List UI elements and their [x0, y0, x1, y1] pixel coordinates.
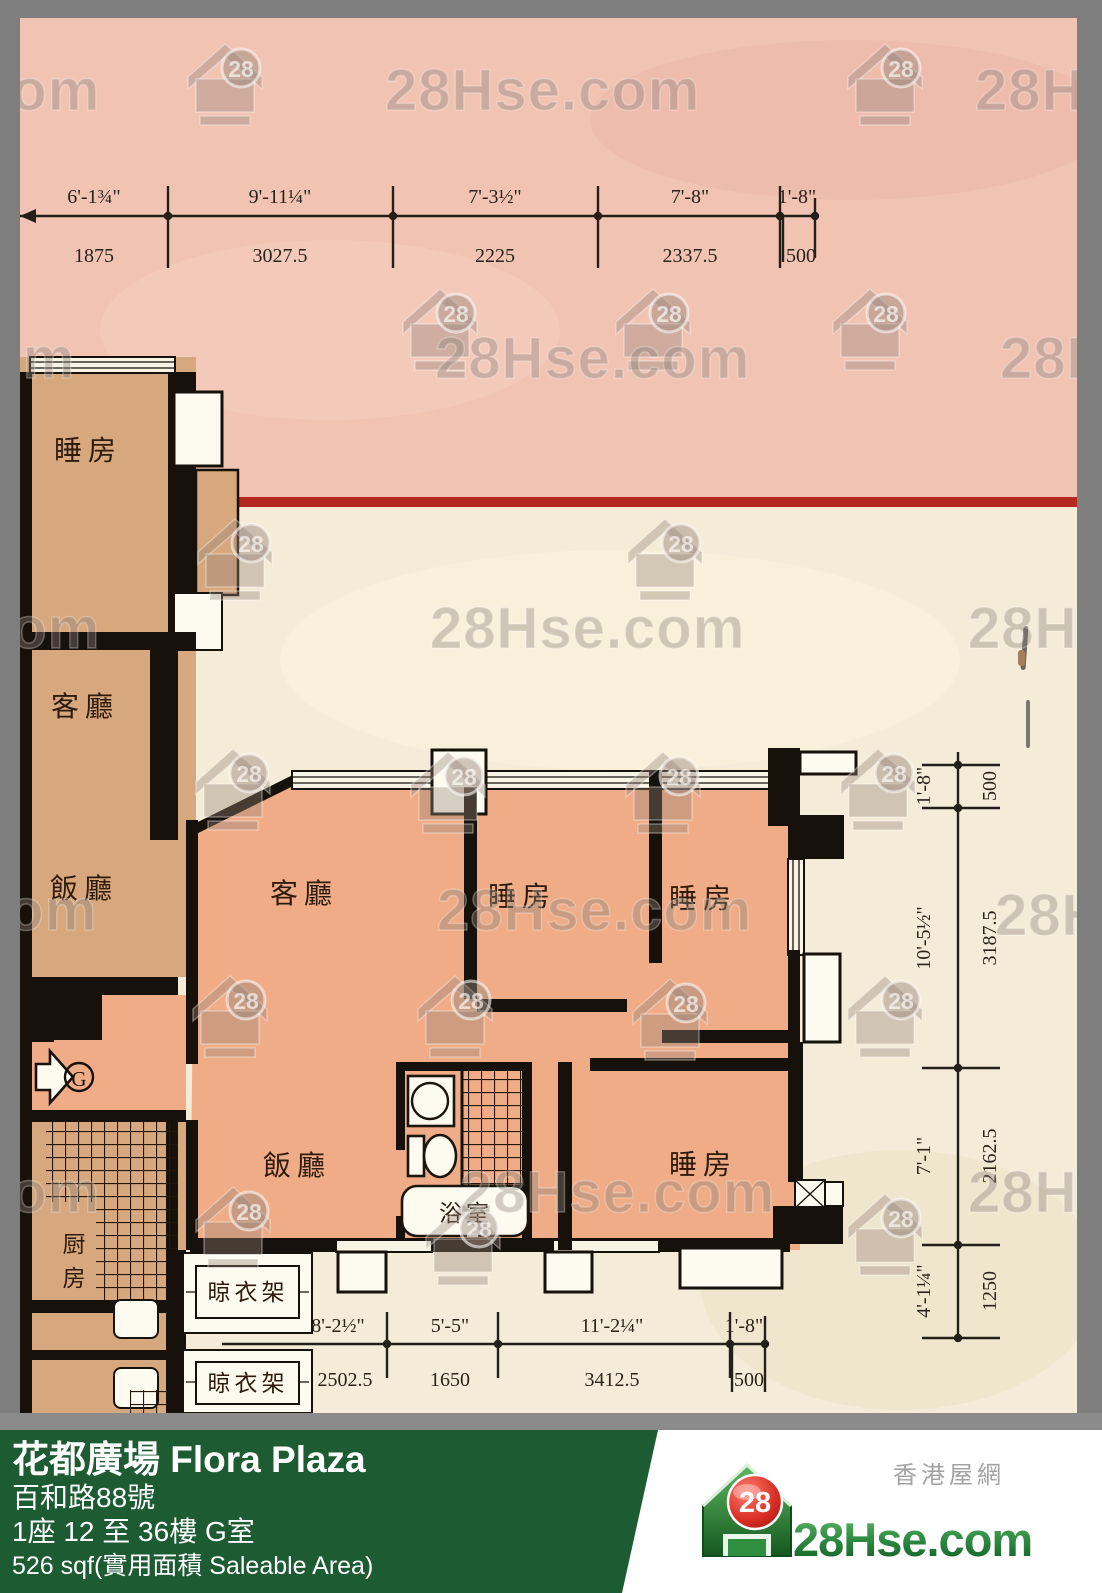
- toilet-icon: [408, 1136, 424, 1176]
- dim-top-ft: 6'-1¾": [67, 186, 120, 208]
- dim-dot: [389, 212, 397, 220]
- floorplan-page: 28 6'-1¾"18759'-11¼"3027.57'-3½"22257'-8…: [0, 0, 1102, 1593]
- dim-bottom-ft: 11'-2¼": [581, 1315, 644, 1337]
- room-label-kitchen-char: 厨: [63, 1232, 90, 1258]
- room-label-living-left: 客廳: [51, 690, 119, 723]
- dim-dot: [383, 1340, 391, 1348]
- dim-right-ft: 1'-8": [913, 767, 935, 805]
- dim-dot: [164, 212, 172, 220]
- dim-dot: [954, 1334, 962, 1342]
- dim-dot: [954, 804, 962, 812]
- footer-gray-band: [0, 1413, 1102, 1432]
- dim-dot: [494, 1340, 502, 1348]
- dim-top-ft: 1'-8": [778, 186, 816, 208]
- dim-bottom-ft: 5'-5": [431, 1315, 469, 1337]
- dim-top-mm: 500: [786, 245, 816, 267]
- watermark-text: 28Hse.com: [437, 878, 752, 943]
- dim-right-ft: 7'-1": [913, 1137, 935, 1175]
- dim-top-ft: 7'-8": [671, 186, 709, 208]
- dim-right-ft: 10'-5½": [913, 906, 935, 969]
- floorplan-scan: 28 6'-1¾"18759'-11¼"3027.57'-3½"22257'-8…: [0, 0, 1102, 1593]
- room-label-living-main: 客廳: [270, 877, 338, 910]
- kitchen-floor-grid: [96, 1202, 178, 1302]
- dim-dot: [811, 212, 819, 220]
- dim-top-mm: 2225: [475, 245, 515, 267]
- dim-top-ft: 7'-3½": [468, 186, 521, 208]
- room-label-dining-main: 飯廳: [263, 1149, 331, 1182]
- dim-dot: [594, 212, 602, 220]
- dim-right-mm: 1250: [979, 1271, 1001, 1311]
- dim-bottom-ft: 1'-8": [725, 1315, 763, 1337]
- watermark-text: 28Hse.com: [435, 326, 750, 391]
- window-box: [338, 1252, 386, 1292]
- dim-top-ft: 9'-11¼": [249, 186, 312, 208]
- footer: 花都廣場 Flora Plaza 百和路88號 1座 12 至 36樓 G室 5…: [0, 1430, 1102, 1593]
- dim-bottom-ft: 8'-2½": [311, 1315, 364, 1337]
- dim-bottom-mm: 1650: [430, 1369, 470, 1391]
- site-name-chinese: 香港屋網: [893, 1462, 1005, 1489]
- watermark-text: 28Hse.com: [385, 58, 700, 123]
- window-box: [804, 954, 840, 1042]
- ac-unit-box: [795, 1180, 843, 1208]
- red-divider-line: [213, 497, 1077, 507]
- drying-rack-label-1: 晾衣架: [208, 1280, 289, 1306]
- bay-window-box: [800, 752, 856, 774]
- floor-unit: 1座 12 至 36樓 G室: [12, 1516, 255, 1547]
- dim-dot: [761, 1340, 769, 1348]
- saleable-area: 526 sqf(實用面積 Saleable Area): [12, 1552, 373, 1580]
- estate-name: 花都廣場 Flora Plaza: [12, 1439, 366, 1480]
- drying-rack-label-2: 晾衣架: [208, 1371, 289, 1397]
- dim-top-mm: 1875: [74, 245, 114, 267]
- dim-bottom-mm: 2502.5: [318, 1369, 373, 1391]
- dim-dot: [954, 761, 962, 769]
- drying-racks: 晾衣架 晾衣架: [183, 1253, 312, 1413]
- dim-bottom-mm: 500: [734, 1369, 764, 1391]
- entrance-unit-label: G: [71, 1067, 86, 1091]
- room-label-bedroom-left: 睡房: [54, 434, 122, 467]
- dim-right-mm: 500: [979, 771, 1001, 801]
- dim-top-mm: 2337.5: [663, 245, 718, 267]
- logo-badge: 28: [739, 1487, 771, 1519]
- dim-dot: [954, 1064, 962, 1072]
- watermark-text: 28Hse.com: [430, 596, 745, 661]
- watermark-text: 28Hse.com: [460, 1160, 775, 1225]
- dim-top-mm: 3027.5: [253, 245, 308, 267]
- window-box: [545, 1252, 592, 1292]
- dim-bottom-mm: 3412.5: [585, 1369, 640, 1391]
- dim-dot: [954, 1241, 962, 1249]
- site-name: 28Hse.com: [793, 1513, 1032, 1566]
- dim-right-ft: 4'-1¼": [913, 1264, 935, 1317]
- dim-dot: [776, 212, 784, 220]
- bay-window-box: [680, 1248, 782, 1288]
- room-label-kitchen-char: 房: [63, 1266, 90, 1292]
- dim-dot: [726, 1340, 734, 1348]
- estate-address: 百和路88號: [12, 1482, 155, 1513]
